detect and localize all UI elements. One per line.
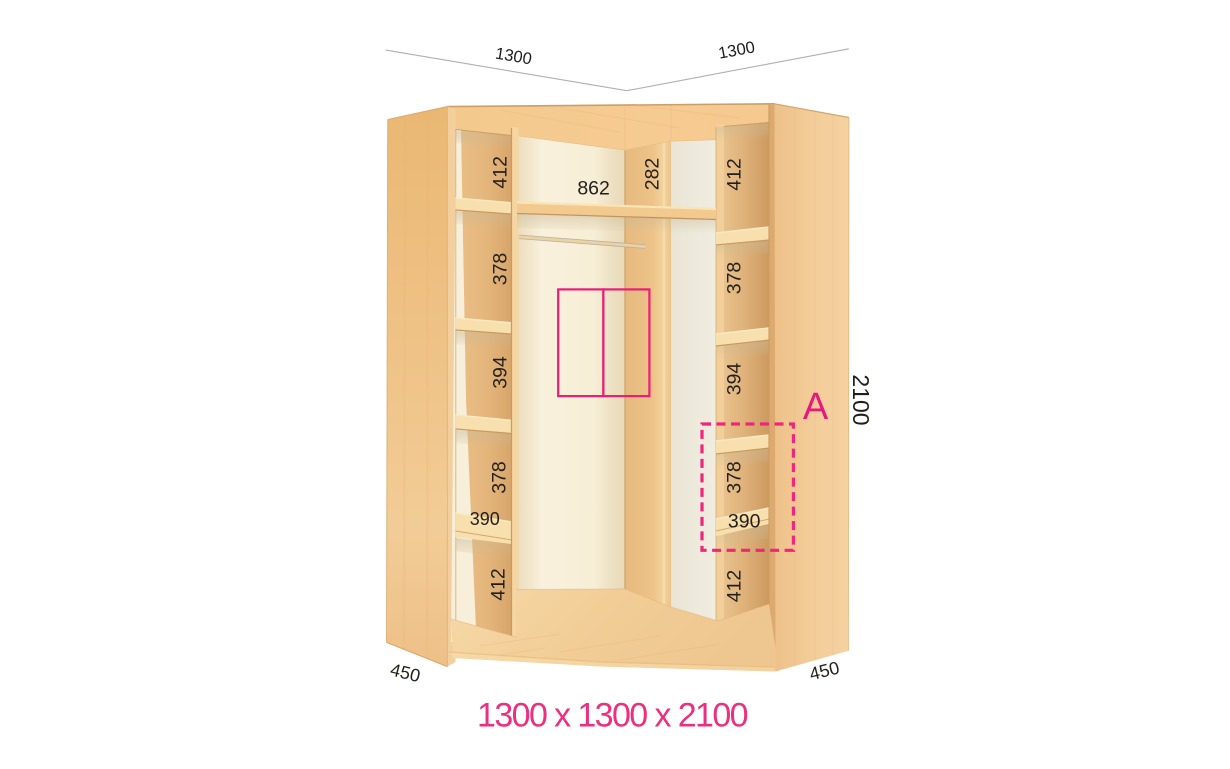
svg-text:378: 378	[490, 253, 512, 286]
svg-text:862: 862	[577, 178, 610, 200]
svg-text:394: 394	[490, 356, 512, 389]
svg-text:1300 x 1300 x 2100: 1300 x 1300 x 2100	[477, 697, 748, 735]
svg-text:282: 282	[642, 158, 664, 191]
svg-text:2100: 2100	[848, 374, 874, 425]
svg-text:390: 390	[470, 509, 500, 529]
svg-text:412: 412	[490, 156, 512, 189]
svg-text:412: 412	[488, 568, 510, 601]
svg-text:378: 378	[724, 461, 746, 494]
svg-text:412: 412	[724, 570, 746, 603]
svg-text:378: 378	[489, 461, 511, 494]
svg-text:390: 390	[728, 511, 761, 533]
svg-text:394: 394	[724, 363, 746, 396]
svg-text:378: 378	[724, 262, 746, 295]
svg-text:A: A	[803, 386, 829, 428]
svg-text:412: 412	[724, 158, 746, 191]
